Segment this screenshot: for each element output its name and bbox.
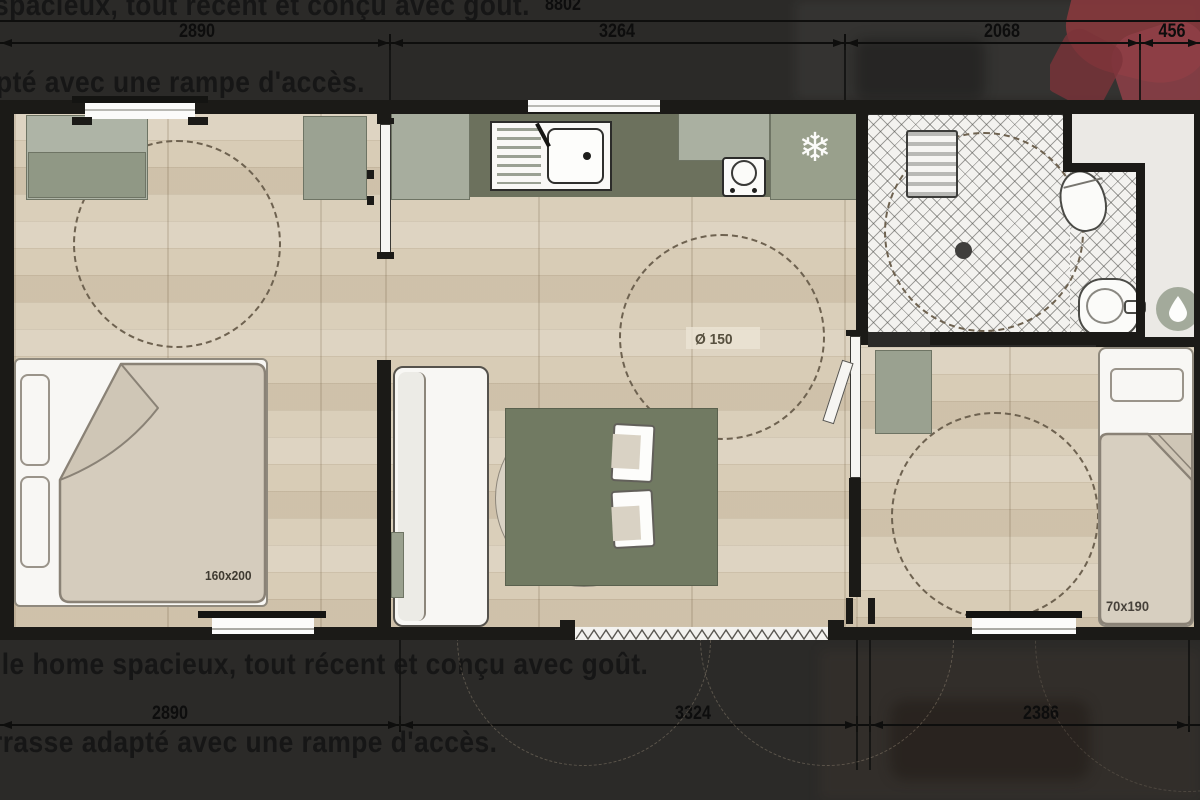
window-master-bottom (198, 611, 326, 618)
single-bed-duvet (1096, 406, 1196, 628)
dim-label-overall: 8802 (545, 0, 581, 16)
label-clearance-diameter: Ø 150 (695, 331, 733, 348)
shower-bench (906, 130, 958, 198)
kitchen-upper-cabinet (678, 113, 770, 161)
room-tech-corner (1072, 113, 1194, 165)
logo-red (1050, 0, 1200, 100)
sliding-door-bedroom2 (850, 336, 861, 478)
wall-bathroom-left (856, 113, 868, 345)
label-single-bed: 70x190 (1106, 598, 1149, 614)
wardrobe-master (303, 116, 367, 200)
dim-top-2068: 2068 (984, 21, 1020, 43)
wardrobe-bedroom2 (875, 350, 932, 434)
dim-top-3264: 3264 (599, 21, 635, 43)
wall-hall-bedroom2 (849, 478, 861, 597)
clearance-circle-bedroom2 (891, 412, 1099, 620)
wall-outer-left (0, 100, 14, 640)
floorplan-frame: spacieux, tout récent et conçu avec goût… (0, 0, 1200, 800)
bg-text-top-2: pté avec une rampe d'accès. (0, 66, 365, 100)
window-bedroom2-bottom (966, 611, 1082, 618)
sink-basin (547, 128, 604, 184)
water-drop-icon (1166, 294, 1190, 324)
pillow (1110, 368, 1184, 402)
photo-hint-toilet (855, 38, 985, 100)
entrance-accordion-door (575, 627, 828, 640)
sofa-side-table (391, 532, 404, 598)
bg-text-bottom-2: rrasse adapté avec une rampe d'accès. (0, 726, 497, 760)
label-double-bed: 160x200 (205, 568, 252, 583)
window-master-top (72, 96, 208, 103)
sink-drainboard (497, 128, 541, 184)
dim-top-2890: 2890 (179, 21, 215, 43)
wall-tech-bottom (1096, 337, 1194, 347)
snowflake-icon: ❄ (787, 128, 843, 168)
pillow (20, 476, 50, 568)
wall-bathroom-right (1136, 163, 1145, 345)
cooktop-burner (731, 160, 757, 186)
sink-drain-dot (583, 152, 591, 160)
sliding-door-master (380, 124, 391, 255)
kitchen-tall-cabinet (391, 113, 470, 200)
dining-chair (611, 489, 656, 549)
dining-chair (611, 423, 656, 483)
pillow (20, 374, 50, 466)
wall-toilet-nook-top (1066, 163, 1145, 172)
dim-bottom-2890: 2890 (152, 703, 188, 725)
dim-top-456: 456 (1159, 21, 1186, 43)
wall-outer-right (1194, 100, 1200, 640)
shower-drain (955, 242, 972, 259)
